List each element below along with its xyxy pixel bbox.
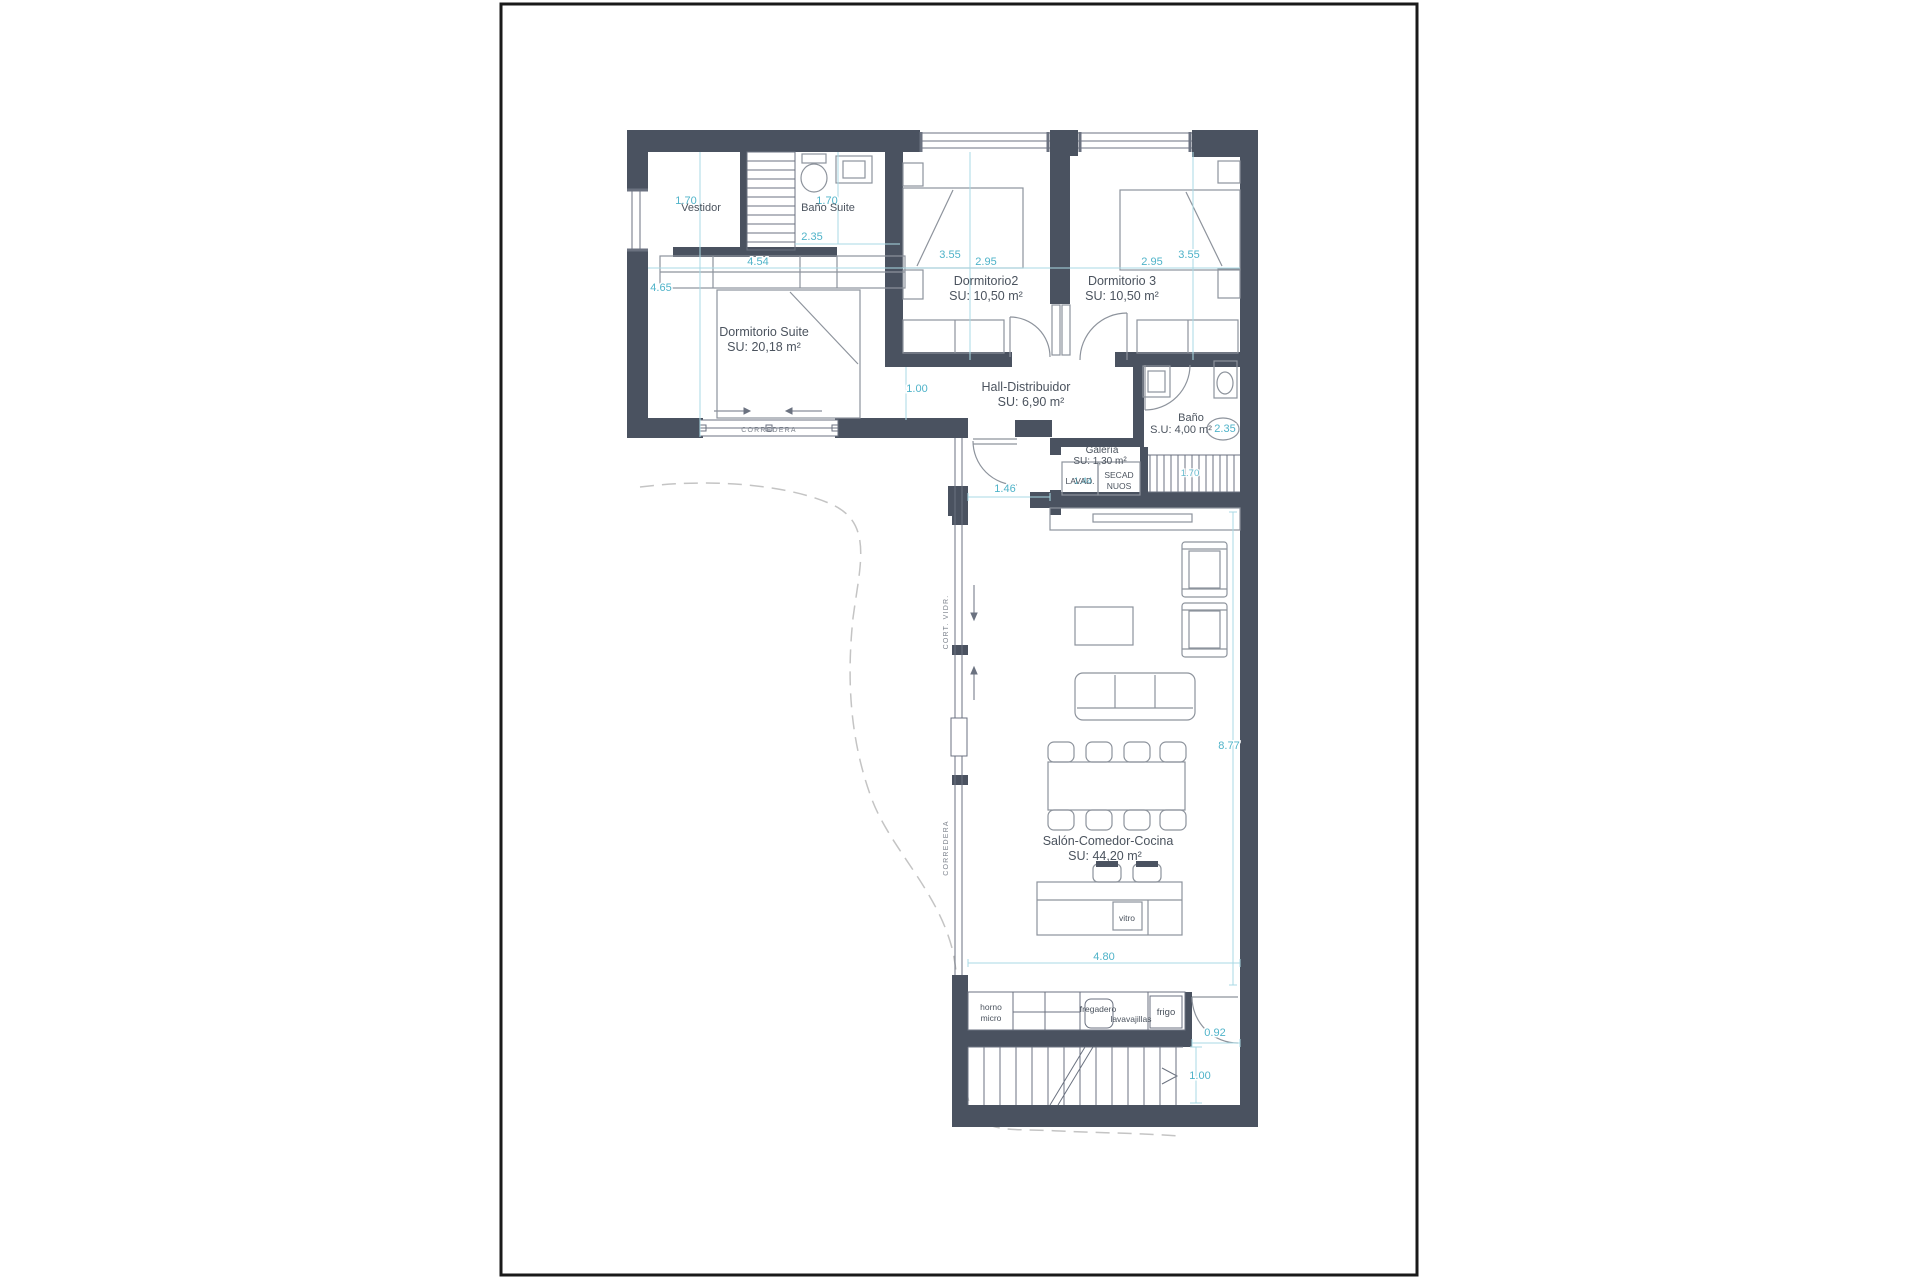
dim-suite-height: 4.65: [650, 282, 671, 294]
window-label-corredera-suite: CORREDERA: [741, 427, 797, 434]
room-label-dormitorio2: Dormitorio2: [954, 274, 1019, 288]
wall-hall-south-stub: [1015, 420, 1052, 437]
dim-dorm2-height: 3.55: [939, 249, 960, 261]
wall-stairs-side: [740, 152, 747, 252]
wall-glazing-mullion-3: [952, 775, 968, 785]
appliance-label-secadora: SECAD: [1104, 470, 1133, 480]
dim-salon-opening: 1.46: [994, 483, 1015, 495]
room-area-salon: SU: 44,20 m²: [1068, 849, 1142, 863]
room-label-galeria: Galería: [1086, 445, 1119, 456]
window-label-salon-lower: CORREDERA: [943, 820, 950, 876]
appliance-label-fregadero: fregadero: [1080, 1004, 1117, 1014]
room-label-vestidor: Vestidor: [681, 202, 721, 214]
room-area-hall: SU: 6,90 m²: [998, 395, 1065, 409]
room-area-galeria: SU: 1,30 m²: [1073, 456, 1127, 467]
floor-plan-page: 1.70 4.65 2.35 4.54 1.70 3.55 2.95 2.95 …: [0, 0, 1920, 1280]
dim-dorm3-height: 3.55: [1178, 249, 1199, 261]
appliance-label-nuos: NUOS: [1107, 481, 1132, 491]
wall-suite-dorm2-divider: [885, 152, 903, 363]
wall-west-kitchen: [952, 975, 968, 1127]
wall-kitchen-south: [952, 1030, 1192, 1047]
dim-entry-width: 0.92: [1204, 1027, 1225, 1039]
wall-salon-west-corner: [948, 486, 968, 516]
appliance-label-vitro: vitro: [1119, 913, 1135, 923]
dim-stairs-width: 1.70: [1181, 468, 1200, 479]
wall-hall-north-left: [885, 352, 1012, 367]
wall-dorm2-dorm3-divider: [1050, 152, 1070, 304]
dim-bano-suite-width: 2.35: [801, 231, 822, 243]
wall-galeria-west-upper: [1050, 438, 1061, 455]
dim-hall-width: 1.00: [906, 383, 927, 395]
room-label-hall: Hall-Distribuidor: [982, 380, 1071, 394]
dim-dorm2-width: 2.95: [975, 256, 996, 268]
room-area-bano: S.U: 4,00 m²: [1150, 424, 1212, 436]
dim-suite-width: 4.54: [747, 256, 768, 268]
wall-glazing-mullion-1: [952, 515, 968, 525]
room-label-bano: Baño: [1178, 412, 1204, 424]
dim-entry-height: 1.00: [1189, 1070, 1210, 1082]
appliance-label-lavavajillas: lavavajillas: [1110, 1014, 1151, 1024]
dim-dorm3-width: 2.95: [1141, 256, 1162, 268]
room-label-salon: Salón-Comedor-Cocina: [1043, 834, 1174, 848]
window-salon-sliding-leaf: [951, 718, 967, 756]
appliance-label-lavadora: LAVAD.: [1066, 476, 1095, 486]
window-label-salon-upper: CORT. VIDR.: [943, 595, 950, 650]
room-area-dormitorio-suite: SU: 20,18 m²: [727, 340, 801, 354]
dim-salon-height: 8.77: [1218, 740, 1239, 752]
wall-south-suite-left: [627, 418, 703, 438]
wall-west-lower: [627, 250, 648, 438]
appliance-label-micro: micro: [981, 1013, 1002, 1023]
room-label-dormitorio3: Dormitorio 3: [1088, 274, 1156, 288]
wall-galeria-stairs-divider: [1140, 447, 1148, 492]
door-panel-dorm2: [1052, 305, 1060, 355]
floor-plan-drawing: 1.70 4.65 2.35 4.54 1.70 3.55 2.95 2.95 …: [0, 0, 1920, 1280]
wall-bano-west: [1133, 360, 1144, 440]
wall-glazing-mullion-2: [952, 645, 968, 655]
room-area-dormitorio3: SU: 10,50 m²: [1085, 289, 1159, 303]
wall-galeria-south: [1030, 492, 1256, 508]
appliance-label-frigo: frigo: [1157, 1007, 1175, 1018]
wall-south-suite-right: [835, 418, 968, 438]
wall-east: [1240, 152, 1258, 1127]
room-label-bano-suite: Baño Suite: [801, 202, 855, 214]
dim-salon-width: 4.80: [1093, 951, 1114, 963]
wall-west-upper: [627, 130, 648, 190]
dim-bano-width: 2.35: [1214, 423, 1235, 435]
door-panel-dorm3: [1062, 305, 1070, 355]
room-label-dormitorio-suite: Dormitorio Suite: [719, 325, 809, 339]
wall-top-left: [627, 130, 920, 152]
room-area-dormitorio2: SU: 10,50 m²: [949, 289, 1023, 303]
appliance-label-horno: horno: [980, 1002, 1002, 1012]
wall-south: [952, 1105, 1258, 1127]
